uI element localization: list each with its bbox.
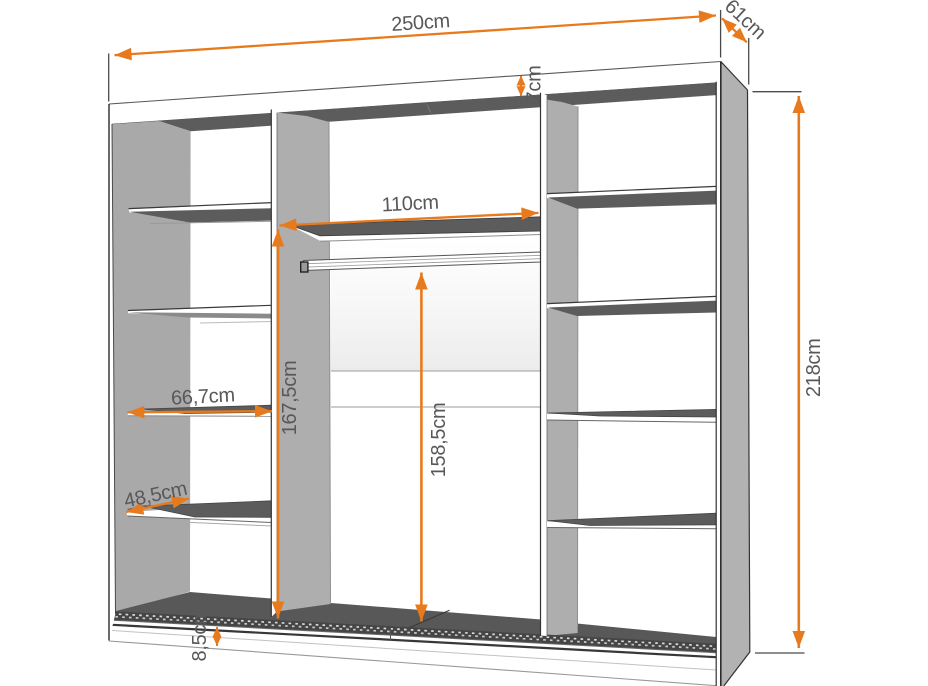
svg-text:66,7cm: 66,7cm	[170, 384, 235, 409]
svg-text:250cm: 250cm	[391, 10, 451, 36]
svg-text:110cm: 110cm	[381, 192, 439, 217]
svg-text:158,5cm: 158,5cm	[428, 403, 450, 478]
svg-text:7cm: 7cm	[524, 66, 546, 103]
svg-text:167,5cm: 167,5cm	[279, 361, 301, 436]
svg-text:218cm: 218cm	[803, 339, 825, 398]
svg-text:8,5cm: 8,5cm	[189, 609, 211, 662]
